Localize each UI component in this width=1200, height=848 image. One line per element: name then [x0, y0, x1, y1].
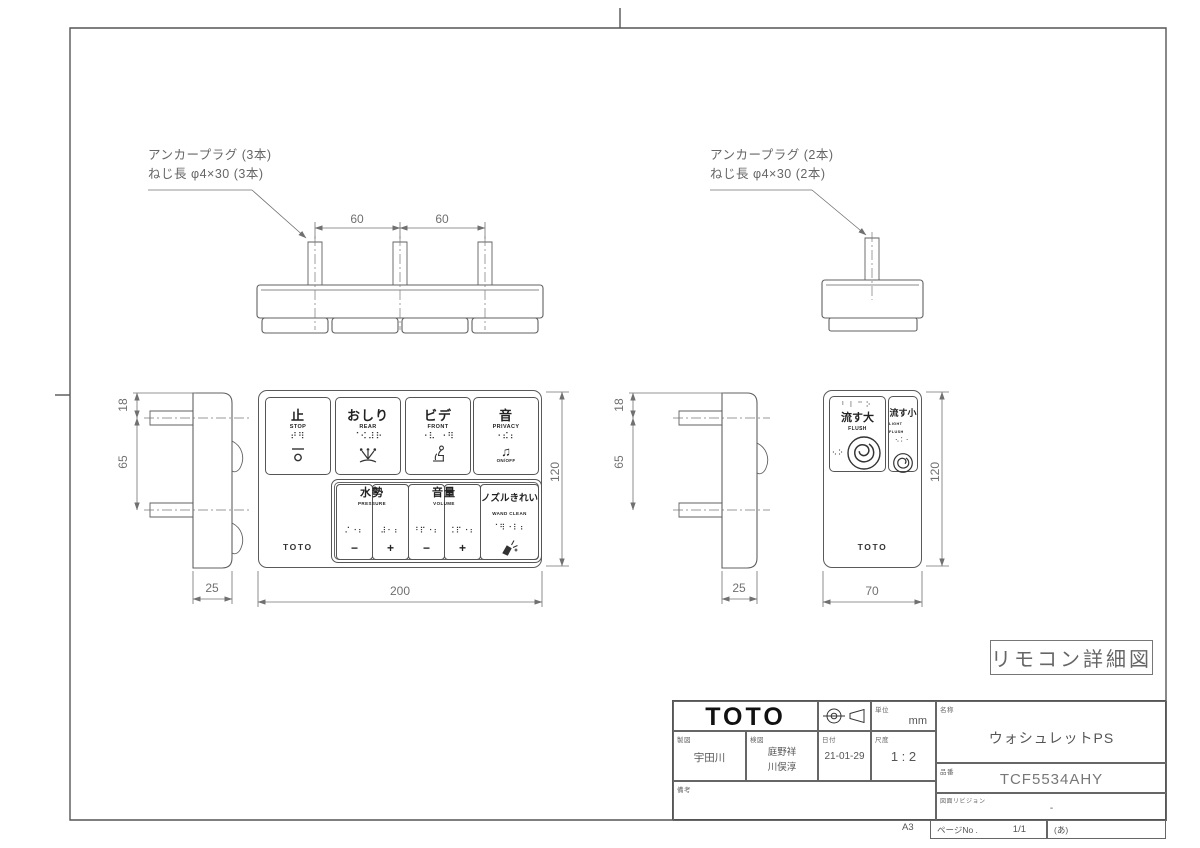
revision-value: - — [937, 803, 1166, 814]
flush-large-braille-top: ⠃⠇⠉⠕ — [841, 400, 874, 411]
part-number-value: TCF5534AHY — [937, 771, 1166, 788]
anchor-plug-note-left: アンカープラグ (3本) ねじ長 φ4×30 (3本) — [148, 146, 272, 184]
anchor-plug-note-right-line2: ねじ長 φ4×30 (2本) — [710, 165, 834, 184]
toto-logo: TOTO — [674, 702, 817, 732]
bidet-kanji: ビデ — [424, 409, 452, 423]
music-note-glyph: ♫ — [501, 445, 511, 458]
flush-small-swirl-icon — [892, 452, 914, 474]
dim-flush-width: 70 — [857, 584, 887, 598]
scale-cell: 尺度 1 : 2 — [871, 731, 936, 781]
page-number-value: 1/1 — [1013, 824, 1040, 835]
page-note-cell: (あ) — [1047, 820, 1166, 839]
volume-plus-sign: + — [459, 543, 466, 553]
detail-title-text: リモコン詳細図 — [991, 643, 1152, 672]
main-remote-front-view: 止 STOP ⠞⠻ おしり REAR ⠈⠪⠼⠗ ビデ F — [258, 390, 542, 568]
scale-value: 1 : 2 — [872, 749, 935, 764]
third-angle-projection-icon — [822, 705, 868, 727]
drafter-cell: 製図 宇田川 — [673, 731, 746, 781]
rear-wash-braille: ⠈⠪⠼⠗ — [353, 431, 383, 442]
pressure-plus-braille: ⠼⠂⠆ — [380, 525, 401, 536]
rear-wash-en: REAR — [359, 423, 376, 431]
wand-clean-button: ノズルきれい WAND CLEAN ⠈⠻⠐⠇⠆ — [480, 484, 539, 560]
sheet-size-label: A3 — [902, 822, 914, 833]
date-cell: 日付 21-01-29 — [818, 731, 871, 781]
main-remote-brand: TOTO — [283, 542, 313, 552]
pressure-group-label: 水勢 PRESSURE — [358, 486, 386, 508]
checker-name-2: 川俣淳 — [747, 759, 817, 773]
stop-button-en: STOP — [290, 423, 306, 431]
stop-button-kanji: 止 — [291, 409, 305, 423]
dim-right-depth: 25 — [724, 581, 754, 595]
page-note-value: (あ) — [1054, 824, 1068, 836]
remarks-label: 備考 — [677, 784, 691, 794]
pressure-en: PRESSURE — [358, 500, 386, 508]
anchor-plug-note-right: アンカープラグ (2本) ねじ長 φ4×30 (2本) — [710, 146, 834, 184]
unit-label: 単位 — [875, 704, 889, 714]
dim-left-pin-pitch: 65 — [116, 447, 130, 477]
flush-remote-brand: TOTO — [824, 542, 921, 552]
bidet-spray-icon — [428, 442, 448, 466]
bidet-braille: ⠐⠧ ⠐⠻ — [421, 431, 455, 442]
privacy-sound-button: 音 PRIVACY ⠐⠮⠆ ♫ ON/OFF — [473, 397, 539, 475]
pressure-kanji: 水勢 — [358, 486, 386, 500]
rear-spray-icon — [357, 442, 379, 466]
scale-label: 尺度 — [875, 734, 889, 744]
music-note-icon: ♫ ON/OFF — [497, 442, 516, 466]
bidet-button: ビデ FRONT ⠐⠧ ⠐⠻ — [405, 397, 471, 475]
title-block-logo-cell: TOTO — [673, 701, 818, 731]
page-number-strip: ページNo . 1/1 (あ) — [930, 820, 1166, 839]
dim-right-pin-pitch: 65 — [612, 447, 626, 477]
rear-wash-kanji: おしり — [347, 409, 389, 423]
pressure-minus-sign: − — [351, 543, 358, 553]
date-value: 21-01-29 — [819, 751, 870, 762]
flush-small-button: 流す小 LIGHT FLUSH ⠢⠅⠂ — [888, 396, 918, 472]
pressure-plus-sign: + — [387, 543, 394, 553]
flush-large-braille-side: ⠢⠕ — [832, 448, 844, 459]
product-name-label: 名称 — [940, 704, 954, 714]
dim-left-top-offset: 18 — [116, 390, 130, 420]
flush-large-swirl-icon — [845, 434, 883, 472]
volume-minus-sign: − — [423, 543, 430, 553]
wand-clean-en: WAND CLEAN — [492, 510, 527, 518]
side-view-right — [673, 393, 770, 568]
volume-en: VOLUME — [432, 500, 456, 508]
detail-title-box: リモコン詳細図 — [990, 640, 1153, 675]
checker-label: 検図 — [750, 734, 764, 744]
drawing-sheet: アンカープラグ (3本) ねじ長 φ4×30 (3本) アンカープラグ (2本)… — [0, 0, 1200, 848]
rear-wash-button: おしり REAR ⠈⠪⠼⠗ — [335, 397, 401, 475]
drafter-name: 宇田川 — [674, 750, 745, 765]
dim-flush-height: 120 — [928, 457, 942, 487]
wand-clean-kanji: ノズルきれい — [481, 492, 538, 506]
dim-main-height: 120 — [548, 457, 562, 487]
volume-group-label: 音量 VOLUME — [432, 486, 456, 508]
checker-name-1: 庭野祥 — [747, 744, 817, 758]
remarks-cell: 備考 — [673, 781, 936, 821]
flush-large-en: FLUSH — [848, 425, 867, 433]
flush-remote-front-view: ⠃⠇⠉⠕ 流す大 FLUSH ⠢⠕ 流す小 LIGHT FLUSH ⠢⠅⠂ — [823, 390, 922, 568]
flush-large-button: ⠃⠇⠉⠕ 流す大 FLUSH ⠢⠕ — [829, 396, 886, 472]
flush-small-kanji: 流す小 — [889, 406, 916, 420]
part-number-cell: 品番 TCF5534AHY — [936, 763, 1167, 793]
sheet-frame — [55, 8, 1166, 820]
product-name-cell: 名称 ウォシュレットPS — [936, 701, 1167, 763]
top-view-main-remote — [257, 236, 543, 333]
title-block: TOTO 単位 mm 製図 宇田川 検図 庭野祥 川俣淳 日付 — [672, 700, 1166, 820]
dim-left-depth: 25 — [197, 581, 227, 595]
product-name-value: ウォシュレットPS — [937, 728, 1166, 748]
dim-right-top-offset: 18 — [612, 390, 626, 420]
anchor-plug-note-left-line1: アンカープラグ (3本) — [148, 146, 272, 165]
bidet-en: FRONT — [428, 423, 449, 431]
wand-clean-icon — [499, 537, 521, 556]
dim-screw-pitch-right: 60 — [427, 212, 457, 226]
privacy-braille: ⠐⠮⠆ — [495, 431, 518, 442]
anchor-plug-note-right-line1: アンカープラグ (2本) — [710, 146, 834, 165]
top-view-flush-remote — [822, 232, 923, 331]
pressure-minus-braille: ⠌⠐⠆ — [344, 525, 365, 536]
stop-icon — [288, 442, 308, 466]
unit-cell: 単位 mm — [871, 701, 936, 731]
privacy-en: PRIVACY — [493, 423, 520, 431]
privacy-kanji: 音 — [499, 409, 513, 423]
volume-plus-braille: ⠨⠏⠐⠆ — [449, 525, 476, 536]
page-number-label: ページNo . — [937, 824, 978, 836]
date-label: 日付 — [822, 734, 836, 744]
adjust-panel: ⠌⠐⠆ − ⠼⠂⠆ + ⠘⠏⠐⠆ − ⠨⠏⠐⠆ + ノズルきれい WAND CL… — [331, 479, 542, 563]
page-number-cell: ページNo . 1/1 — [930, 820, 1047, 839]
revision-cell: 図面リビジョン - — [936, 793, 1167, 821]
dim-screw-pitch-left: 60 — [342, 212, 372, 226]
projection-symbol-cell — [818, 701, 871, 731]
music-note-caption: ON/OFF — [497, 458, 516, 463]
leader-lines — [148, 190, 866, 238]
flush-small-en: LIGHT FLUSH — [889, 420, 917, 436]
flush-large-kanji: 流す大 — [841, 411, 874, 425]
flush-small-braille: ⠢⠅⠂ — [895, 436, 911, 447]
stop-button-braille: ⠞⠻ — [290, 431, 305, 442]
volume-kanji: 音量 — [432, 486, 456, 500]
stop-button: 止 STOP ⠞⠻ — [265, 397, 331, 475]
unit-value: mm — [872, 715, 935, 727]
side-view-left — [144, 393, 252, 568]
volume-minus-braille: ⠘⠏⠐⠆ — [413, 525, 440, 536]
checker-cell: 検図 庭野祥 川俣淳 — [746, 731, 818, 781]
anchor-plug-note-left-line2: ねじ長 φ4×30 (3本) — [148, 165, 272, 184]
dim-main-width: 200 — [380, 584, 420, 598]
wand-clean-braille: ⠈⠻⠐⠇⠆ — [492, 522, 526, 533]
drafter-label: 製図 — [677, 734, 691, 744]
